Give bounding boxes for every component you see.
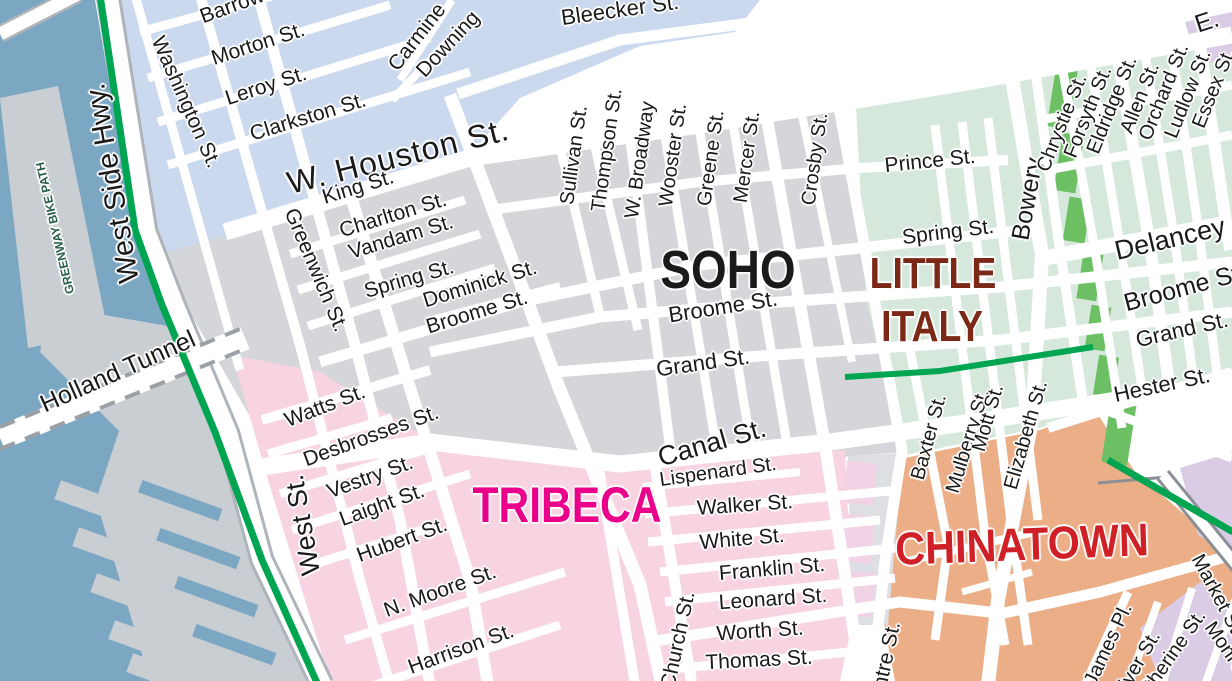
street-map: GREENWAY BIKE PATH West Side Hwy. Hollan…	[0, 0, 1232, 681]
neighborhood-label-chinatown: CHINATOWN	[894, 516, 1149, 572]
neighborhood-label-tribeca: TRIBECA	[473, 480, 662, 530]
neighborhood-label-little-italy-line2: ITALY	[881, 305, 983, 349]
street-label-thomas: Thomas St.	[705, 647, 813, 674]
neighborhood-label-little-italy-line1: LITTLE	[870, 252, 997, 296]
